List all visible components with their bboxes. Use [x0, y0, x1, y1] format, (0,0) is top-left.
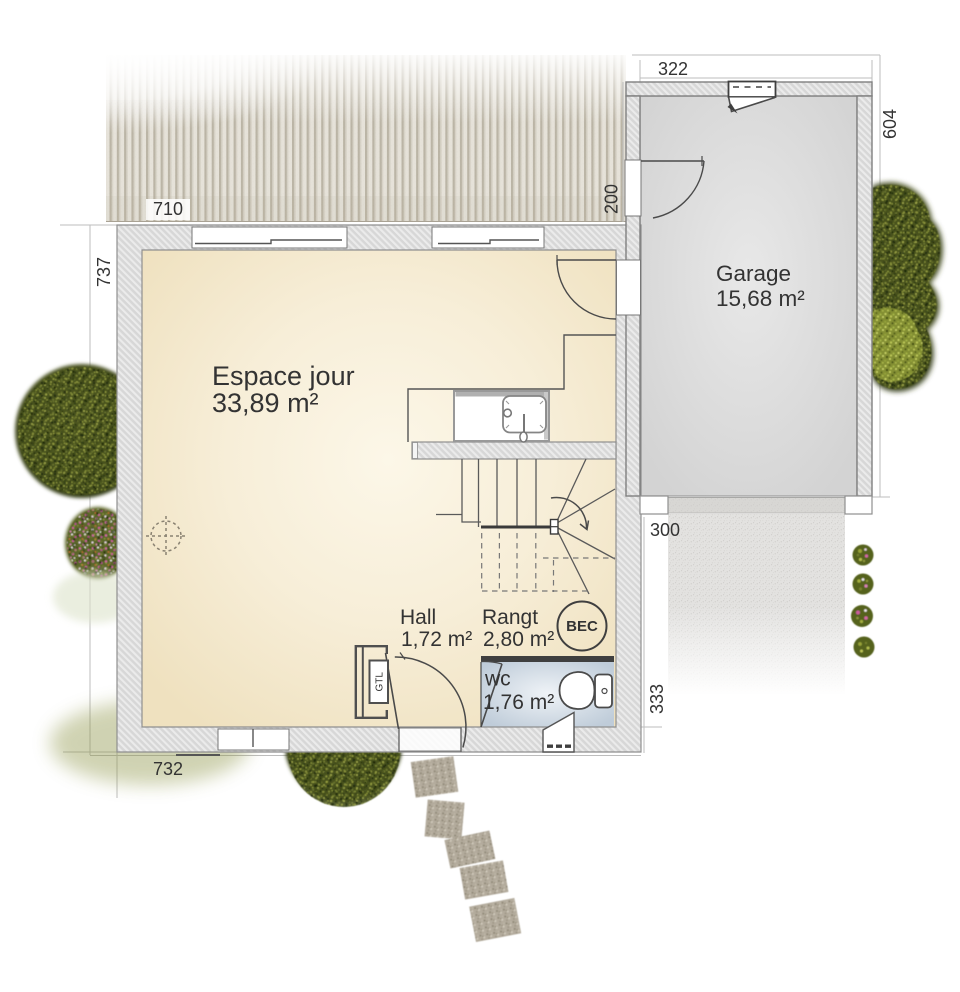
svg-text:33,89 m²: 33,89 m²	[212, 388, 319, 418]
svg-text:732: 732	[153, 759, 183, 779]
svg-text:333: 333	[647, 684, 667, 714]
svg-text:1,72 m²: 1,72 m²	[401, 628, 472, 651]
svg-text:200: 200	[602, 184, 622, 214]
svg-text:322: 322	[658, 59, 688, 79]
svg-text:wc: wc	[484, 668, 511, 691]
svg-text:710: 710	[153, 199, 183, 219]
svg-text:Espace jour: Espace jour	[212, 361, 355, 391]
svg-text:GTL: GTL	[374, 672, 385, 692]
svg-text:2,80 m²: 2,80 m²	[483, 628, 554, 651]
svg-text:300: 300	[650, 520, 680, 540]
svg-text:15,68 m²: 15,68 m²	[716, 286, 805, 311]
svg-text:Hall: Hall	[400, 606, 436, 629]
svg-text:737: 737	[94, 257, 114, 287]
svg-text:Rangt: Rangt	[482, 606, 538, 629]
svg-text:1,76 m²: 1,76 m²	[483, 691, 554, 714]
svg-text:BEC: BEC	[566, 618, 598, 635]
svg-text:604: 604	[880, 109, 900, 139]
svg-text:Garage: Garage	[716, 261, 791, 286]
